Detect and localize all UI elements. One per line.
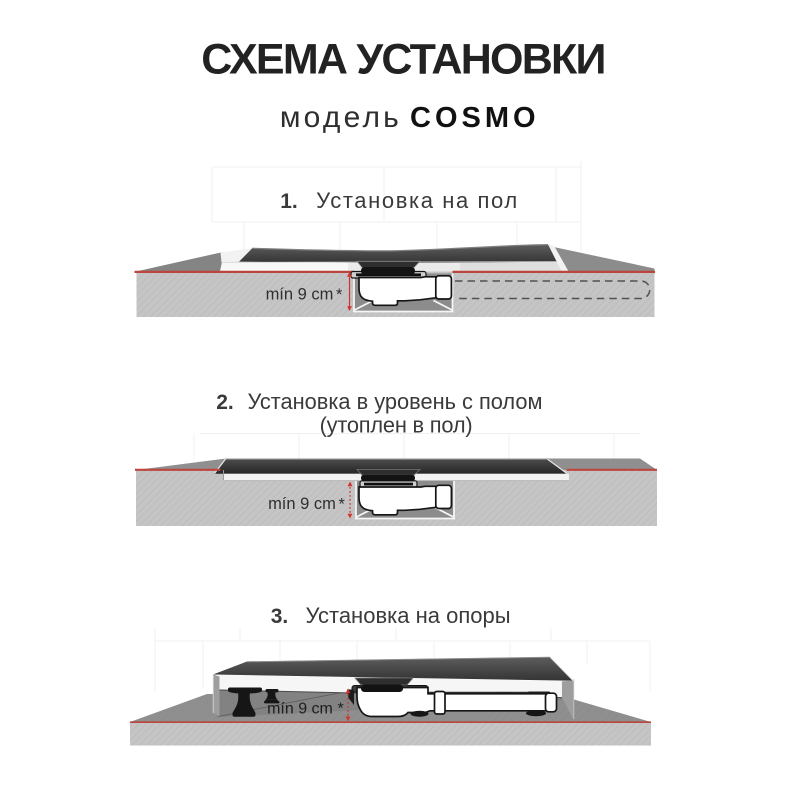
svg-text:Установка в уровень с полом: Установка в уровень с полом	[248, 389, 543, 414]
svg-text:Установка на пол: Установка на пол	[316, 188, 519, 213]
svg-text:mín 9 cm: mín 9 cm	[268, 495, 336, 513]
svg-text:(утоплен в пол): (утоплен в пол)	[320, 413, 473, 438]
svg-text:3.: 3.	[271, 605, 289, 628]
svg-text:модель: модель	[280, 101, 402, 134]
svg-text:СХЕМА УСТАНОВКИ: СХЕМА УСТАНОВКИ	[201, 36, 604, 84]
svg-text:mín 9 cm: mín 9 cm	[267, 701, 333, 718]
svg-text:Установка на опоры: Установка на опоры	[305, 603, 510, 628]
svg-text:COSMO: COSMO	[410, 102, 540, 134]
svg-text:*: *	[336, 286, 343, 304]
svg-text:*: *	[339, 496, 346, 514]
svg-text:*: *	[338, 701, 344, 718]
svg-text:mín 9 cm: mín 9 cm	[266, 286, 334, 304]
svg-text:2.: 2.	[216, 391, 234, 414]
svg-text:1.: 1.	[280, 190, 298, 213]
